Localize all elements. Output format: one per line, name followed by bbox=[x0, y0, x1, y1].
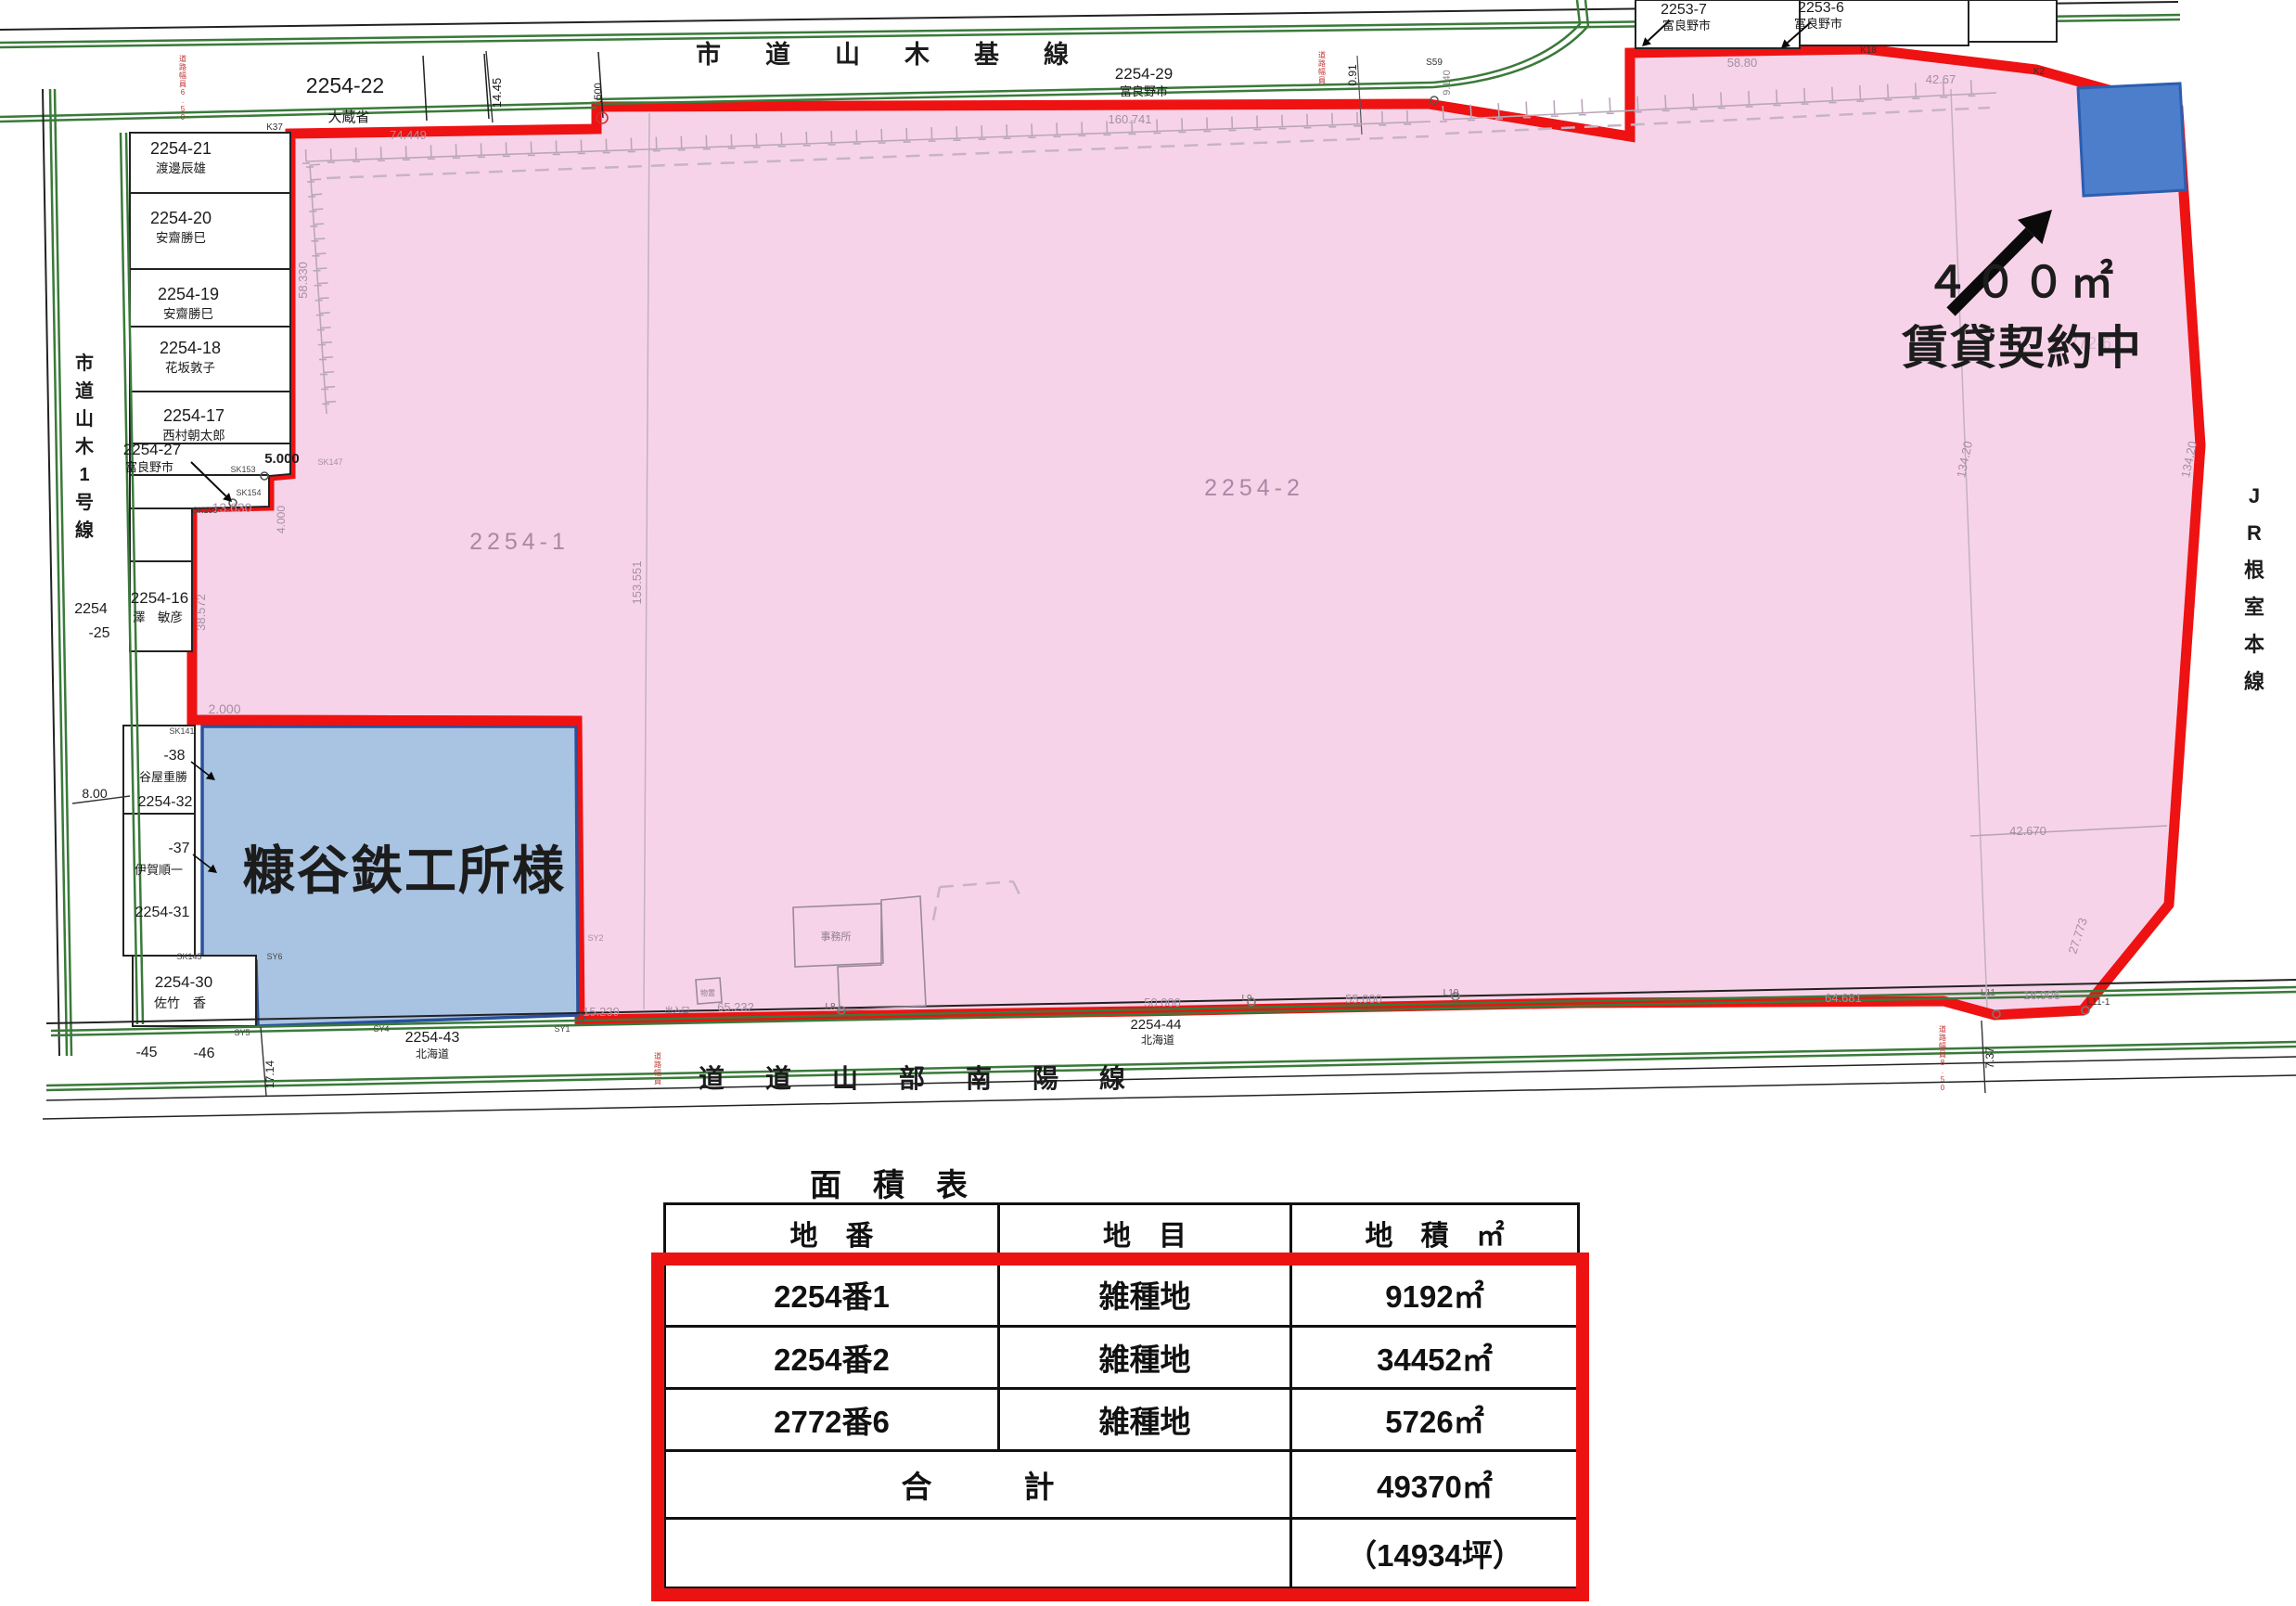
lot-2254-22: 2254-22 bbox=[306, 73, 384, 97]
table-tsubo-row: （14934坪） bbox=[665, 1519, 1579, 1588]
bldg-entrance-label: 出入口 bbox=[664, 1005, 689, 1015]
pt-sk154: SK154 bbox=[236, 488, 261, 497]
lot-2254-27: 2254-27 bbox=[123, 441, 181, 458]
pt-sk155: SK155 bbox=[192, 506, 217, 515]
col-header-area: 地 積 ㎡ bbox=[1291, 1204, 1579, 1263]
owner-2254-18: 花坂敦子 bbox=[165, 361, 215, 375]
dim-58-330: 58.330 bbox=[296, 262, 310, 299]
dim-8-00: 8.00 bbox=[82, 786, 107, 801]
table-row: 2772番6 雑種地 5726㎡ bbox=[665, 1389, 1579, 1451]
owner-2254-30: 佐竹 香 bbox=[154, 996, 206, 1010]
owner-2254-29: 富良野市 bbox=[1120, 84, 1168, 98]
pt-l11: L11 bbox=[1981, 988, 1995, 998]
pt-sy4: SY4 bbox=[373, 1024, 389, 1034]
cell-category: 雑種地 bbox=[999, 1389, 1291, 1451]
pt-sk153: SK153 bbox=[230, 465, 255, 474]
pt-sk147: SK147 bbox=[317, 457, 342, 467]
lot-2254-21: 2254-21 bbox=[150, 139, 212, 158]
col-header-category: 地 目 bbox=[999, 1204, 1291, 1263]
lot-2254-16: 2254-16 bbox=[131, 589, 188, 607]
owner-2254-43: 北海道 bbox=[416, 1047, 449, 1060]
lot-2254-43: 2254-43 bbox=[405, 1030, 460, 1046]
pt-sy2: SY2 bbox=[587, 933, 603, 943]
dim-50-000: 50.000 bbox=[1144, 996, 1181, 1009]
owner-2254-37: 伊賀順一 bbox=[135, 863, 183, 877]
dim-500: .500 bbox=[593, 83, 604, 102]
dim-74-449: 74.449 bbox=[390, 128, 427, 142]
lot-2254-30: 2254-30 bbox=[155, 973, 212, 991]
stamp-road-width-3: 道路幅員 bbox=[654, 1051, 661, 1086]
table-row: 2254番2 雑種地 34452㎡ bbox=[665, 1327, 1579, 1389]
cell-total-tsubo: （14934坪） bbox=[1291, 1519, 1579, 1588]
pt-sy5: SY5 bbox=[234, 1028, 250, 1037]
table-total-row: 合 計 49370㎡ bbox=[665, 1451, 1579, 1519]
pt-s59: S59 bbox=[1426, 58, 1443, 68]
lot-2254-31: 2254-31 bbox=[135, 905, 190, 920]
pt-sy6: SY6 bbox=[266, 952, 282, 961]
road-parcel-divider-b bbox=[484, 54, 489, 119]
dim-55-000: 55.000 bbox=[1345, 992, 1382, 1006]
lot-2254-38: -38 bbox=[163, 748, 185, 764]
lot-2254-29: 2254-29 bbox=[1115, 65, 1173, 83]
lot-2254-25a: 2254 bbox=[74, 601, 108, 617]
lease-status-label: 賃貸契約中 bbox=[1901, 322, 2143, 374]
owner-okurasho: 大蔵省 bbox=[327, 109, 369, 125]
lot-2254-17: 2254-17 bbox=[163, 406, 224, 425]
cadastral-map-page: 市道山木基線2254-22大蔵省2254-29富良野市2253-7富良野市225… bbox=[0, 0, 2296, 1606]
dim-7-37: 7.37 bbox=[1983, 1047, 1996, 1069]
pt-k37: K37 bbox=[266, 122, 283, 133]
col-header-lot: 地 番 bbox=[665, 1204, 999, 1263]
dim-5-000: 5.000 bbox=[264, 451, 300, 467]
cell-area: 34452㎡ bbox=[1291, 1327, 1579, 1389]
lot-2254-18: 2254-18 bbox=[160, 339, 221, 357]
cell-lot: 2254番2 bbox=[665, 1327, 999, 1389]
dim-2-000: 2.000 bbox=[208, 701, 240, 716]
pt-k18: K18 bbox=[1860, 45, 1877, 56]
pt-l11-1: L11-1 bbox=[2087, 997, 2110, 1008]
dim-4-000: 4.000 bbox=[275, 506, 288, 533]
dim-160-741: 160.741 bbox=[1109, 112, 1152, 126]
dim-65-232: 65.232 bbox=[717, 1000, 754, 1014]
dim-64-681: 64.681 bbox=[1825, 991, 1862, 1005]
owner-2254-19: 安齋勝巳 bbox=[163, 306, 213, 321]
road-name-bottom: 道道山部南陽線 bbox=[699, 1063, 1166, 1093]
lot-2254-25b: -25 bbox=[88, 625, 109, 641]
cell-empty bbox=[665, 1519, 1291, 1588]
lot-2254-20: 2254-20 bbox=[150, 209, 212, 227]
dim-38-572: 38.572 bbox=[194, 594, 208, 631]
stamp-road-width-2: 道路幅員 bbox=[1318, 50, 1326, 84]
dim-13-630: 13.630 bbox=[212, 500, 252, 515]
cell-area: 5726㎡ bbox=[1291, 1389, 1579, 1451]
dim-42-67: 42.67 bbox=[1926, 72, 1956, 86]
pt-l10: L10 bbox=[1443, 988, 1459, 998]
dim-14-45: 14.45 bbox=[490, 78, 504, 109]
cell-total-label: 合 計 bbox=[665, 1451, 1291, 1519]
cell-lot: 2254番1 bbox=[665, 1263, 999, 1327]
pt-l9: L9 bbox=[1241, 994, 1252, 1004]
lease-area-400m2 bbox=[2078, 84, 2186, 196]
owner-2253-6: 富良野市 bbox=[1794, 17, 1842, 31]
road-name-left: 市道山木1号線 bbox=[74, 352, 95, 541]
owner-2254-20: 安齋勝巳 bbox=[156, 230, 206, 245]
lot-2254-44: 2254-44 bbox=[1130, 1017, 1181, 1033]
cell-lot: 2772番6 bbox=[665, 1389, 999, 1451]
dim-42-670: 42.670 bbox=[2009, 824, 2046, 838]
dim-0-91: 0.91 bbox=[1346, 64, 1359, 86]
owner-2254-38: 谷屋重勝 bbox=[139, 770, 187, 784]
owner-2254-16: 澤 敏彦 bbox=[133, 610, 183, 624]
cell-total-area: 49370㎡ bbox=[1291, 1451, 1579, 1519]
lot-2254-32: 2254-32 bbox=[138, 794, 193, 810]
boundary-shelf bbox=[192, 720, 577, 721]
table-row: 2254番1 雑種地 9192㎡ bbox=[665, 1263, 1579, 1327]
lot-2254-45: -45 bbox=[135, 1045, 157, 1060]
owner-2253-7: 富良野市 bbox=[1662, 19, 1711, 32]
dim-16-906: 16.906 bbox=[2023, 988, 2060, 1002]
owner-2254-44: 北海道 bbox=[1141, 1033, 1174, 1047]
owner-2254-21: 渡邊辰雄 bbox=[156, 161, 206, 175]
dim-153-551: 153.551 bbox=[630, 561, 644, 605]
dim-17-14: 17.14 bbox=[263, 1060, 276, 1088]
owner-2254-27: 富良野市 bbox=[125, 460, 173, 474]
rail-name: JR根室本線 bbox=[2244, 484, 2264, 693]
lot-2253-7: 2253-7 bbox=[1661, 2, 1707, 18]
cell-category: 雑種地 bbox=[999, 1327, 1291, 1389]
bldg-office-label: 事務所 bbox=[821, 930, 852, 943]
dim-15-239: 15.239 bbox=[583, 1005, 620, 1019]
road-name-top: 市道山木基線 bbox=[696, 40, 1113, 69]
tenant-label: 糠谷鉄工所様 bbox=[243, 842, 566, 900]
pt-sk145: SK145 bbox=[176, 952, 201, 961]
area-table: 地 番 地 目 地 積 ㎡ 2254番1 雑種地 9192㎡ 2254番2 雑種… bbox=[663, 1202, 1580, 1589]
cell-category: 雑種地 bbox=[999, 1263, 1291, 1327]
pt-l8: L8 bbox=[825, 1002, 836, 1012]
lot-2254-2: 2254-2 bbox=[1204, 475, 1304, 501]
lot-2254-46: -46 bbox=[193, 1046, 214, 1061]
cell-area: 9192㎡ bbox=[1291, 1263, 1579, 1327]
lot-2253-6: 2253-6 bbox=[1798, 0, 1844, 16]
pt-k2: K2 bbox=[2033, 67, 2046, 77]
lease-area-label: ４００㎡ bbox=[1926, 258, 2119, 306]
bldg-shed-label: 物置 bbox=[700, 988, 715, 997]
dim-9-140: 9.140 bbox=[1442, 70, 1453, 96]
stamp-road-width-1: 道路幅員6.50 bbox=[179, 54, 186, 122]
lot-2254-19: 2254-19 bbox=[158, 285, 219, 303]
dim-58-80: 58.80 bbox=[1727, 56, 1758, 70]
lot-2254-37: -37 bbox=[168, 841, 189, 856]
lot-2254-1: 2254-1 bbox=[469, 529, 570, 555]
pt-sk141: SK141 bbox=[169, 726, 194, 736]
pt-sy1: SY1 bbox=[554, 1024, 570, 1034]
